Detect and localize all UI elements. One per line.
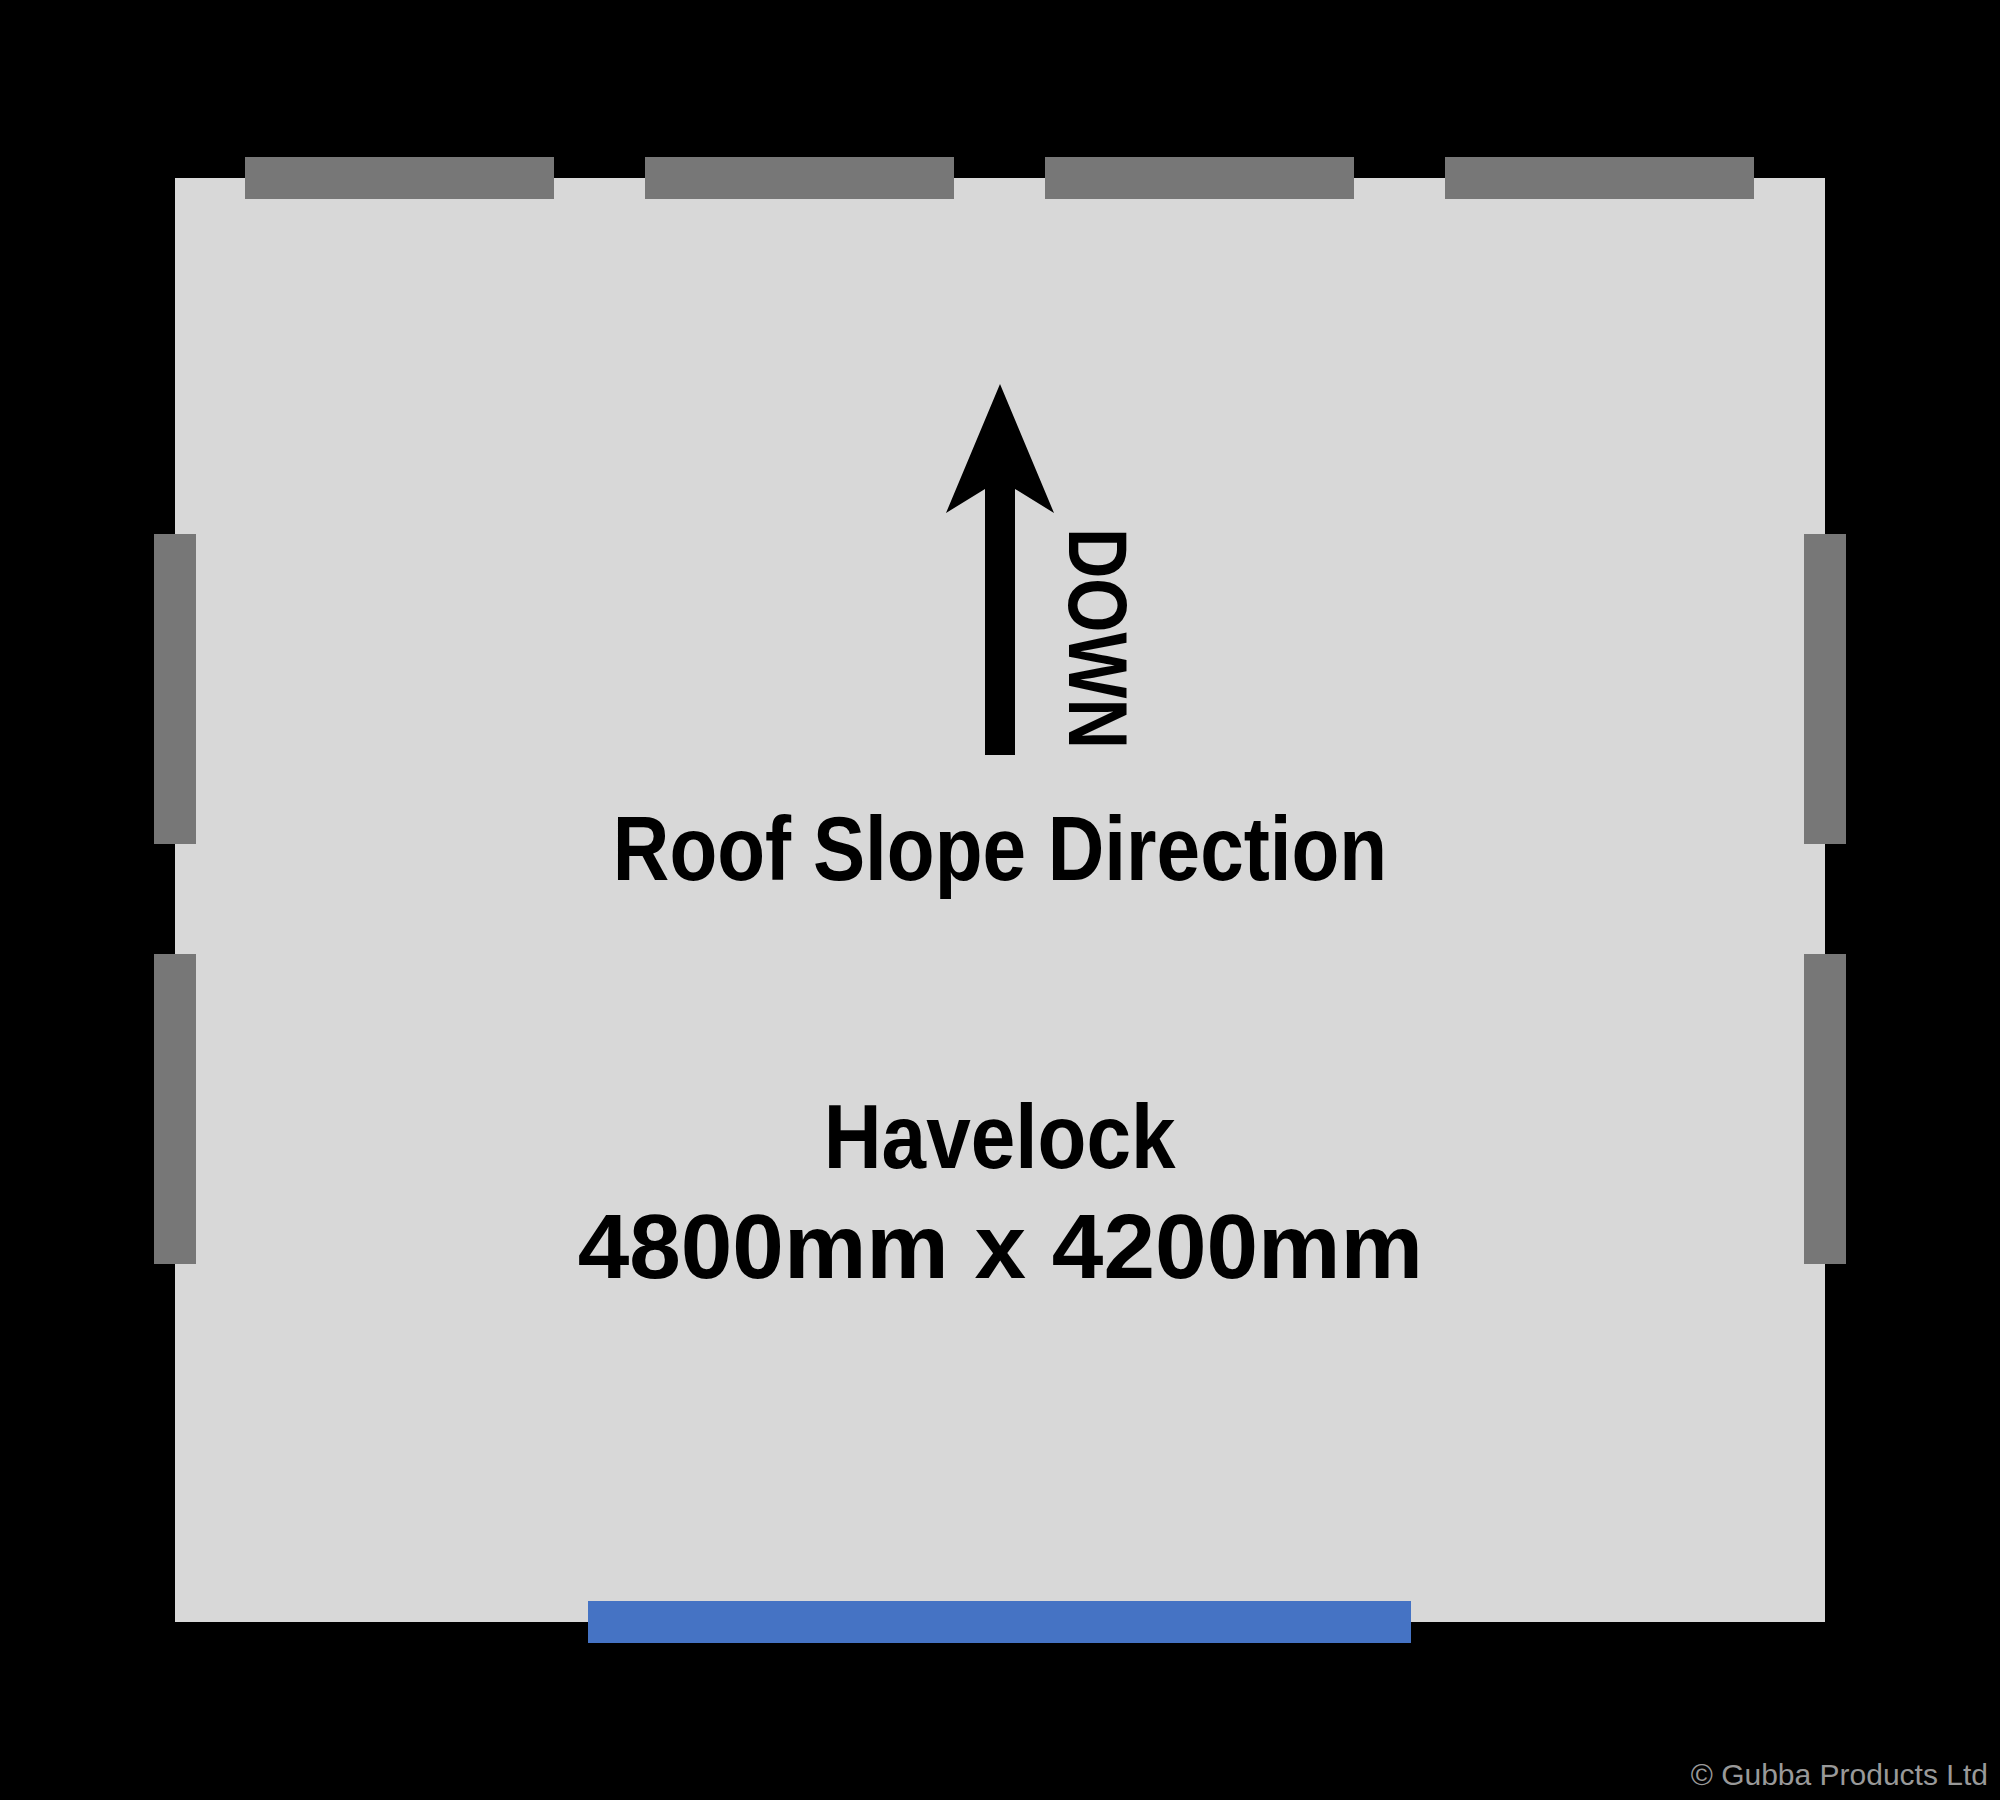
roof-slope-direction-label: Roof Slope Direction	[175, 804, 1825, 894]
window-right-1	[1804, 534, 1846, 844]
product-name: Havelock	[824, 1082, 1176, 1192]
product-info: Havelock 4800mm x 4200mm	[175, 1082, 1825, 1302]
window-top-3	[1045, 157, 1354, 199]
arrow-up-icon	[940, 380, 1060, 760]
copyright-notice: © Gubba Products Ltd	[1691, 1758, 1988, 1792]
window-left-1	[154, 534, 196, 844]
floorplan-canvas: DOWN Roof Slope Direction Havelock 4800m…	[0, 0, 2000, 1800]
product-dimensions: 4800mm x 4200mm	[577, 1192, 1422, 1302]
door-front	[588, 1601, 1411, 1643]
roof-slope-direction-text: Roof Slope Direction	[613, 804, 1387, 894]
window-top-4	[1445, 157, 1754, 199]
window-top-1	[245, 157, 554, 199]
window-top-2	[645, 157, 954, 199]
down-label: DOWN	[1056, 528, 1140, 749]
